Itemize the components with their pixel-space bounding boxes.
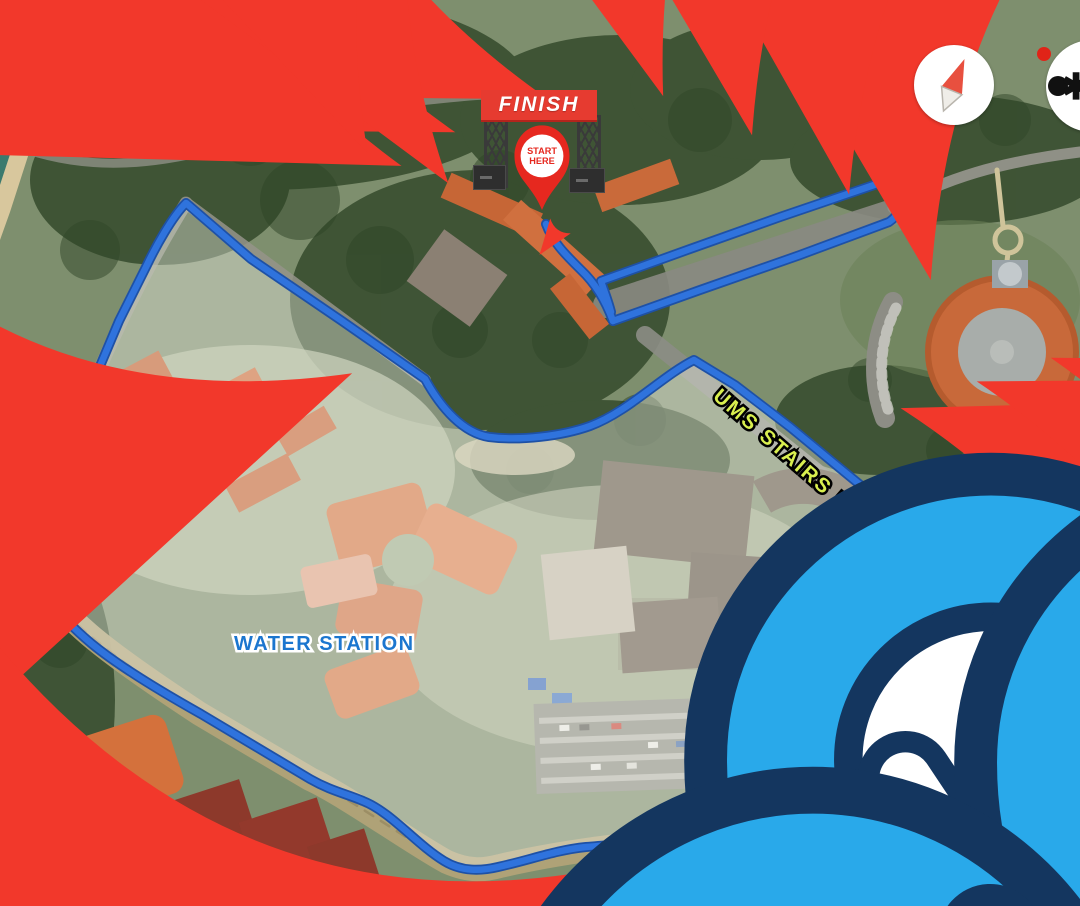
start-pin-text-line1: START	[527, 146, 557, 156]
water-station-label: WATER STATION	[234, 633, 415, 655]
compass-needle-icon	[914, 45, 994, 125]
notification-badge	[1037, 47, 1051, 61]
speaker-box-left	[473, 165, 506, 190]
map-canvas: UMS STAIRS PINAKOL WATER STATION START H…	[0, 0, 1080, 906]
race-route-overlay: UMS STAIRS PINAKOL WATER STATION START H…	[0, 0, 1080, 906]
speaker-box-right	[569, 168, 605, 193]
finish-banner: FINISH	[481, 90, 597, 122]
start-here-pin: START HERE	[514, 125, 569, 210]
star-icon: ✱	[1061, 66, 1080, 108]
compass-button[interactable]	[914, 45, 994, 125]
start-pin-text-line2: HERE	[529, 156, 554, 166]
